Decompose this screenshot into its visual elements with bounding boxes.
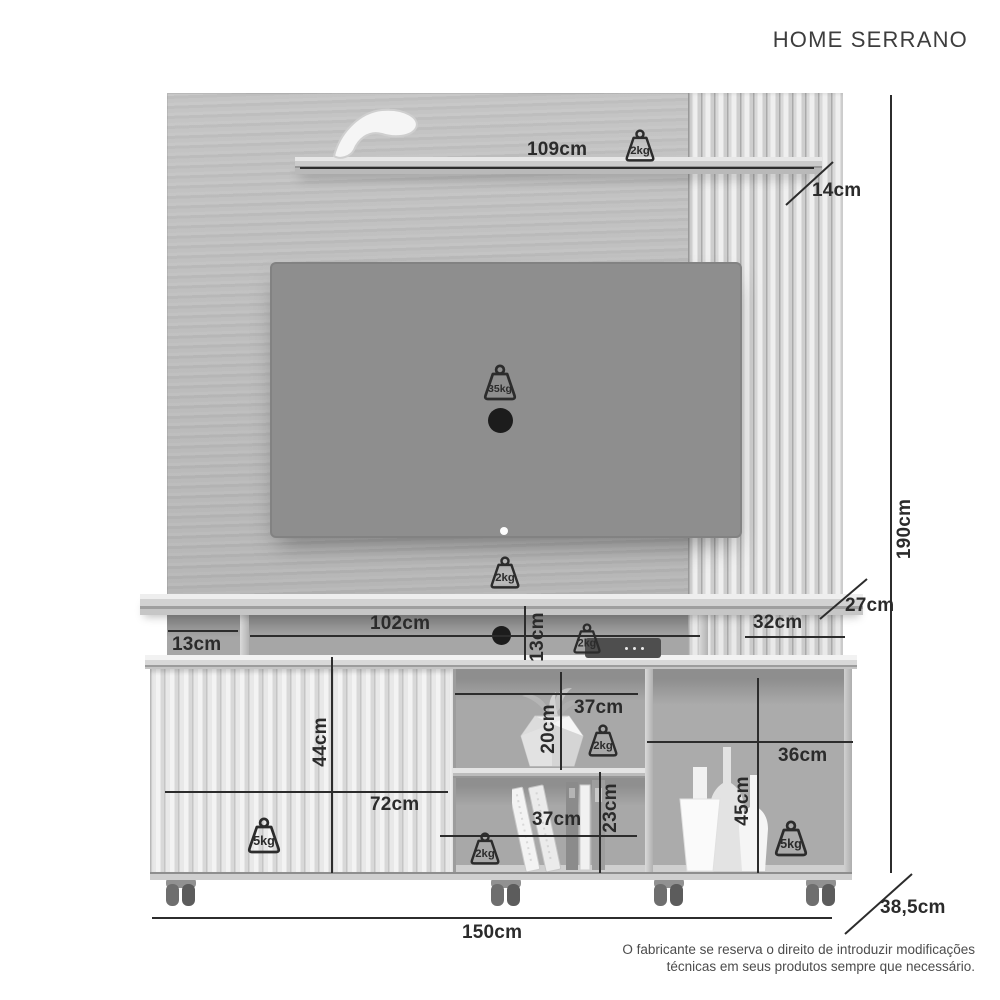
media-receiver-decor [585,638,661,658]
dim-line-total-height [890,95,892,873]
dim-label-total-depth: 38,5cm [880,897,946,919]
footer-line1: O fabricante se reserva o direito de int… [622,941,975,958]
console-cable-hole [492,626,511,645]
device-led [633,647,636,650]
tv-cable-hole [488,408,513,433]
cabinet-right-wall [844,669,852,872]
bottles-decor [666,745,778,878]
books-decor [512,778,608,877]
faceted-vase-plant-decor [502,684,602,777]
stage: HOME SERRANO [0,0,1000,1000]
footer-line2: técnicas em seus produtos sempre que nec… [622,958,975,975]
device-led [625,647,628,650]
dim-line-total-depth [845,874,912,934]
product-title: HOME SERRANO [773,27,968,53]
device-led [641,647,644,650]
tv-power-led [500,527,508,535]
abstract-sculpture-decor [320,104,470,160]
console-niche-slats [688,615,843,655]
console-shelf [140,594,863,615]
cabinet-top-board [145,655,857,669]
console-divider-right [699,615,708,655]
dim-line-total-width [152,917,832,919]
footer-disclaimer: O fabricante se reserva o direito de int… [622,941,975,975]
cabinet-divider [645,669,653,872]
tv-screen [270,262,742,538]
dim-label-total-width: 150cm [462,922,522,944]
cabinet-slatted-door [150,669,456,872]
dim-label-total-height: 190cm [894,499,916,559]
console-divider-left [240,615,249,655]
